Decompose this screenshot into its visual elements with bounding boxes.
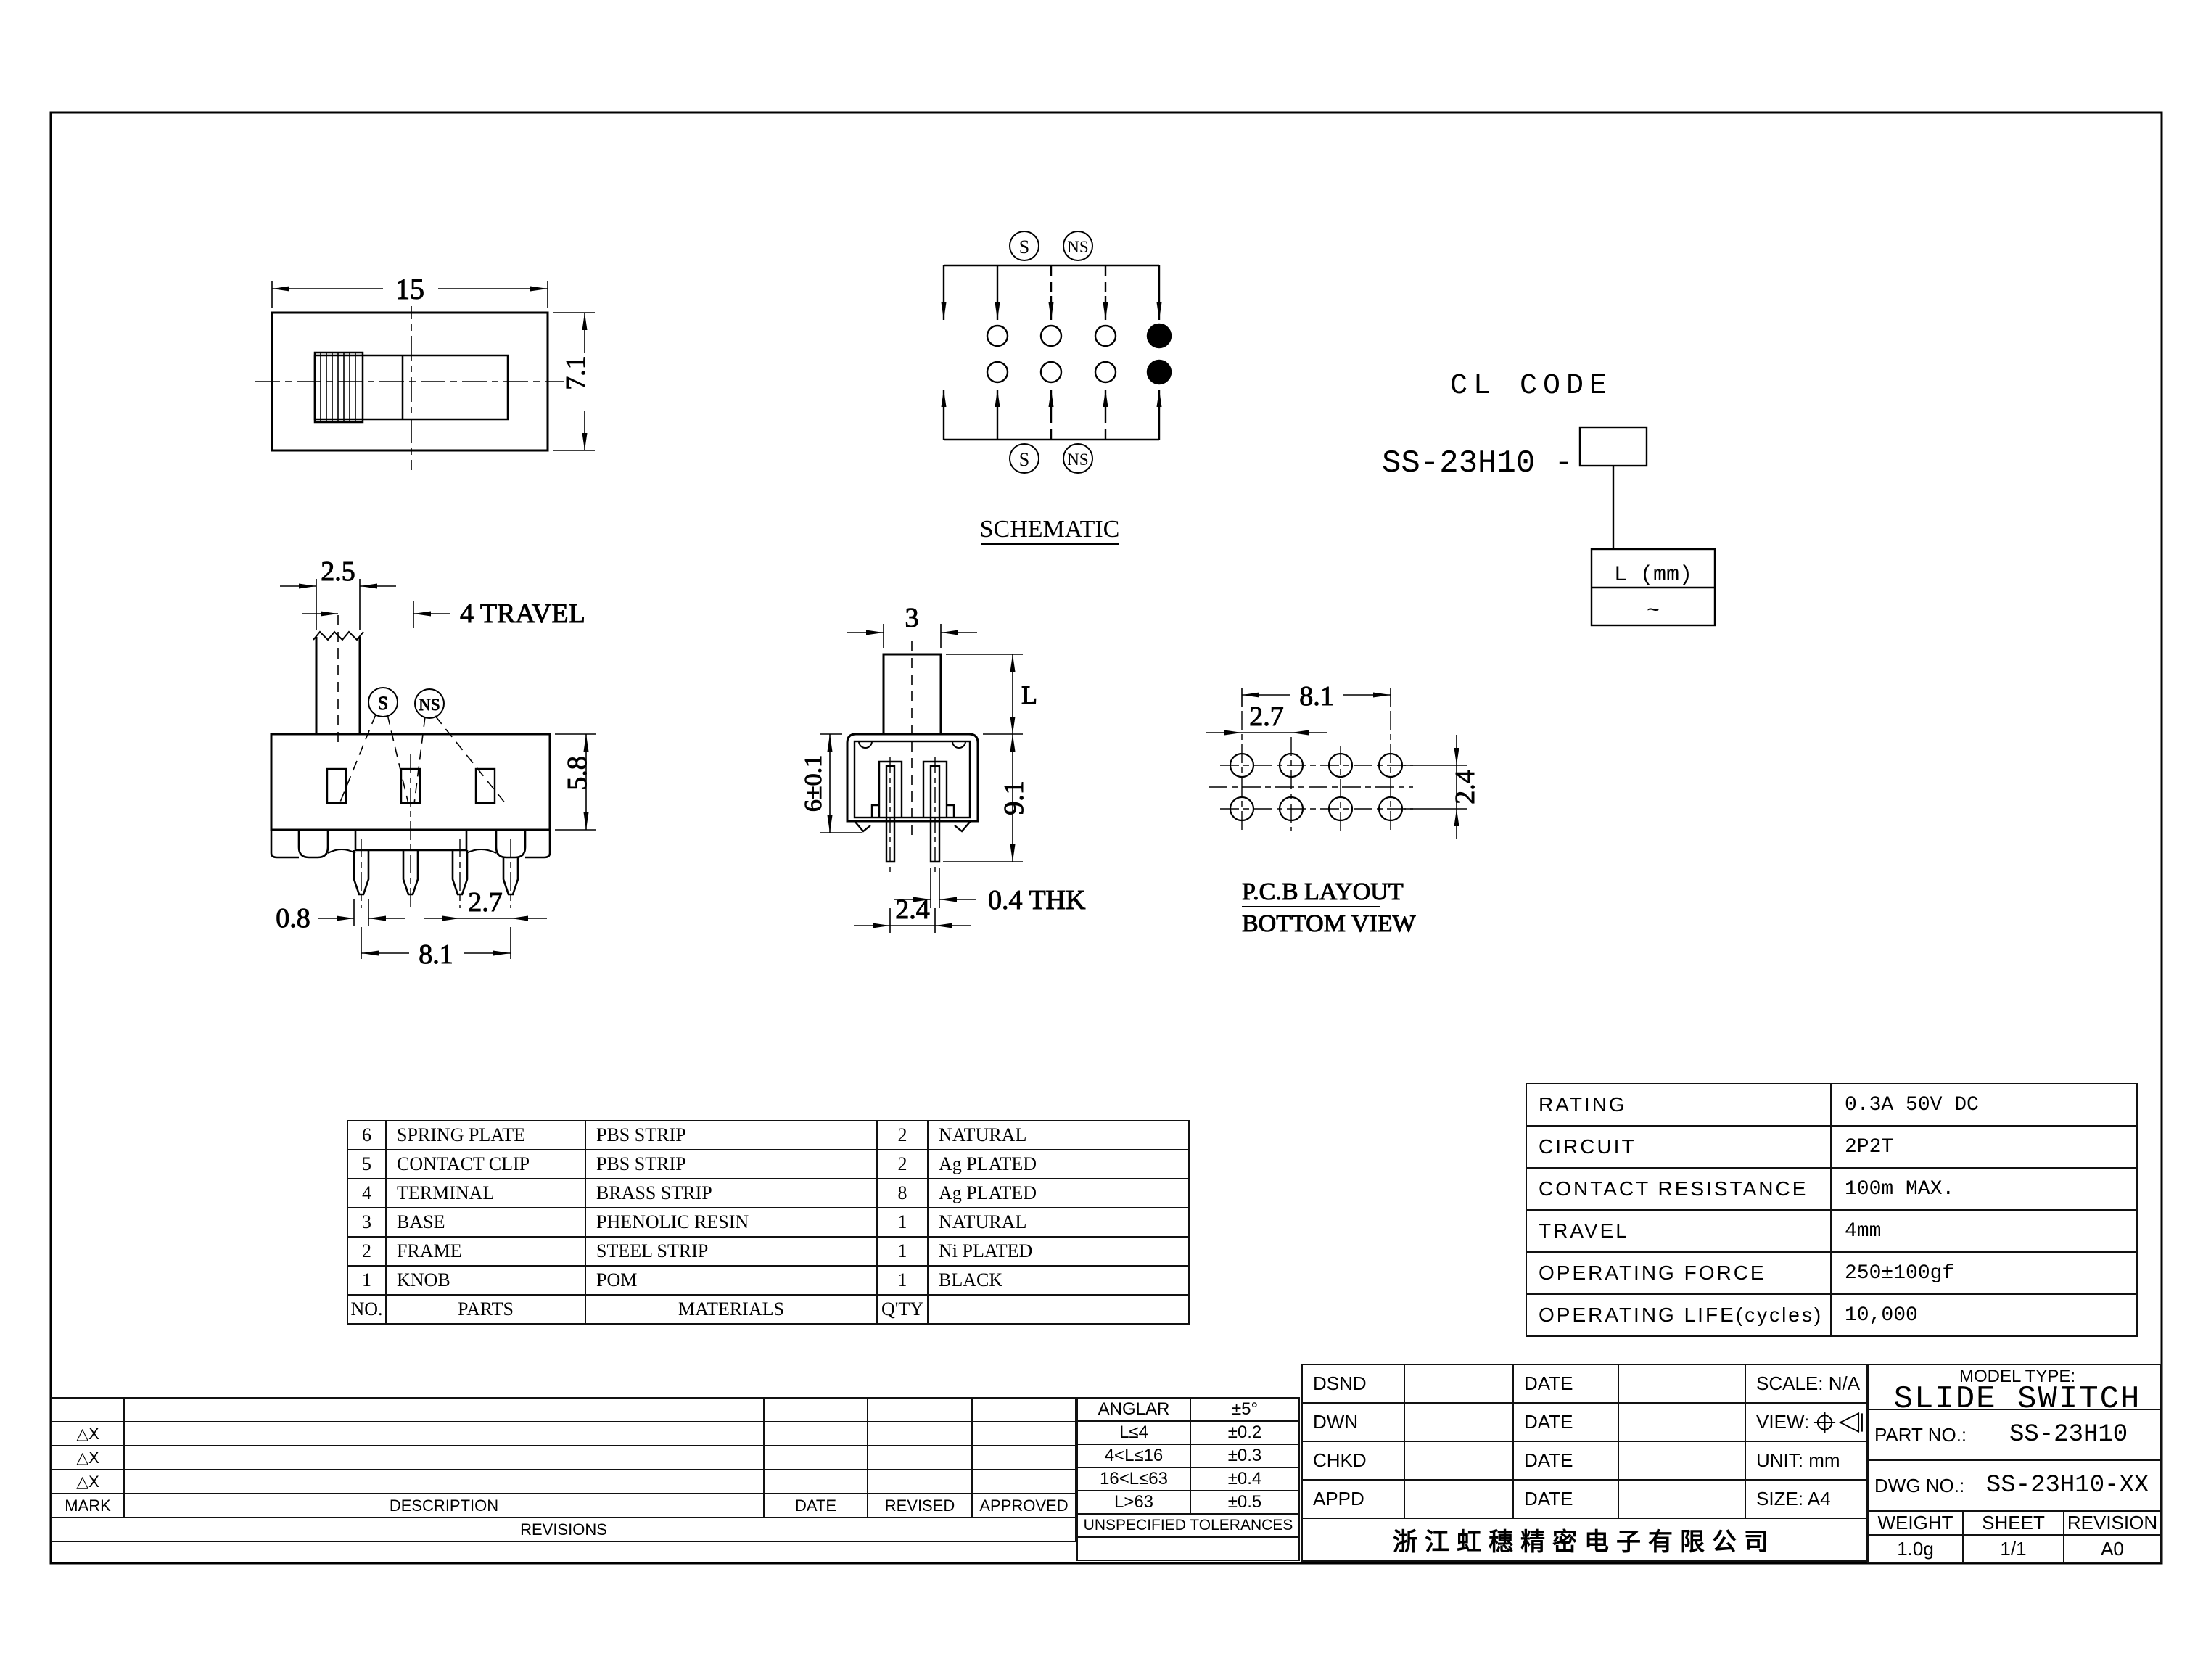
approval-label: DWN	[1303, 1404, 1404, 1441]
top-view: 15 7.1	[255, 270, 601, 470]
cl-code-part-number: SS-23H10 -	[1382, 445, 1573, 482]
revisions-table: △X △X △X MARK DESCRIPTION DATE REVISED A…	[51, 1397, 1076, 1542]
header-parts: PARTS	[387, 1296, 585, 1323]
approval-sign	[1405, 1404, 1512, 1441]
front-ns-label: NS	[419, 696, 440, 714]
dim-front-span: 8.1	[419, 939, 453, 970]
side-pin-centerlines	[890, 757, 935, 874]
pcb-centerlines	[1209, 711, 1413, 831]
dim-front-pitch: 2.7	[468, 887, 503, 918]
cell-qty: 1	[878, 1238, 927, 1265]
cell-finish: Ag PLATED	[929, 1179, 1188, 1207]
schematic-s-top: S	[1019, 236, 1029, 258]
common-contact-bottom	[1148, 361, 1171, 384]
view-label-text: VIEW:	[1756, 1411, 1809, 1433]
model-type-cell: MODEL TYPE: SLIDE SWITCH	[1869, 1365, 2160, 1409]
tolerances-title: UNSPECIFIED TOLERANCES	[1078, 1515, 1298, 1536]
schematic-ns-top: NS	[1067, 238, 1088, 256]
dwg-no-label: DWG NO.:	[1874, 1475, 1964, 1497]
tol-range: 4<L≤16	[1078, 1445, 1190, 1467]
tol-range: L>63	[1078, 1491, 1190, 1513]
sheet-header: SHEET	[1964, 1512, 2063, 1534]
rev-empty	[868, 1399, 971, 1421]
rev-empty	[125, 1422, 763, 1445]
cell-finish: Ni PLATED	[929, 1238, 1188, 1265]
spec-value: 2P2T	[1832, 1127, 2136, 1167]
dim-pcb-rows: 2.4	[1450, 770, 1481, 804]
cell-part: BASE	[387, 1208, 585, 1236]
pin-centerlines	[361, 754, 511, 908]
cell-part: FRAME	[387, 1238, 585, 1265]
spec-label: CIRCUIT	[1527, 1127, 1830, 1167]
cl-code-title: CL CODE	[1450, 370, 1613, 403]
spec-label: RATING	[1527, 1084, 1830, 1125]
sheet-value: 1/1	[1964, 1536, 2063, 1562]
cell-finish: NATURAL	[929, 1121, 1188, 1149]
front-s-label: S	[378, 693, 388, 714]
third-angle-projection-icon	[1813, 1408, 1866, 1437]
cell-finish: Ag PLATED	[929, 1150, 1188, 1178]
header-no: NO.	[348, 1296, 385, 1323]
cell-part: SPRING PLATE	[387, 1121, 585, 1149]
spec-label: TRAVEL	[1527, 1211, 1830, 1251]
rev-empty	[973, 1399, 1075, 1421]
rev-empty	[973, 1422, 1075, 1445]
part-no-value: SS-23H10	[1977, 1421, 2160, 1449]
approval-label: CHKD	[1303, 1442, 1404, 1479]
part-no-cell: PART NO.: SS-23H10	[1869, 1410, 2160, 1459]
company-name: 浙江虹穗精密电子有限公司	[1303, 1519, 1866, 1560]
cell-finish: NATURAL	[929, 1208, 1188, 1236]
schematic-s-bottom: S	[1019, 449, 1029, 470]
cell-finish: BLACK	[929, 1267, 1188, 1294]
dim-top-height: 7.1	[561, 355, 591, 390]
tolerances-table: ANGLAR ±5° L≤4 ±0.2 4<L≤16 ±0.3 16<L≤63 …	[1076, 1397, 1300, 1561]
dim-pcb-span: 8.1	[1299, 681, 1334, 712]
dim-front-height: 5.8	[562, 756, 593, 791]
cell-no: 1	[348, 1267, 385, 1294]
dim-front-pin-width: 0.8	[276, 903, 310, 934]
pcb-subtitle: BOTTOM VIEW	[1242, 910, 1416, 937]
unit-label: UNIT: mm	[1746, 1442, 1866, 1479]
front-view: 2.5 4 TRAVEL S NS	[271, 556, 596, 970]
cell-qty: 1	[878, 1267, 927, 1294]
cell-no: 4	[348, 1179, 385, 1207]
scale-label: SCALE: N/A	[1746, 1365, 1866, 1402]
spec-label: OPERATING FORCE	[1527, 1253, 1830, 1293]
rev-empty	[868, 1446, 971, 1469]
tol-empty	[1078, 1538, 1298, 1560]
tol-value: ±5°	[1191, 1399, 1298, 1420]
cl-code-l-mm: L (mm)	[1614, 563, 1692, 588]
contact-leader-lines	[339, 715, 506, 804]
dwg-no-cell: DWG NO.: SS-23H10-XX	[1869, 1461, 2160, 1510]
approval-date-value	[1619, 1404, 1745, 1441]
rev-empty	[868, 1470, 971, 1493]
rev-header-description: DESCRIPTION	[125, 1494, 763, 1517]
dim-front-travel: 4 TRAVEL	[460, 598, 585, 629]
rev-empty	[125, 1446, 763, 1469]
cell-material: POM	[586, 1267, 876, 1294]
approval-date-label: DATE	[1514, 1442, 1618, 1479]
dim-side-knob: 3	[905, 603, 919, 633]
schematic-ns-bottom: NS	[1067, 450, 1088, 469]
spec-value: 10,000	[1832, 1295, 2136, 1335]
approval-label: APPD	[1303, 1481, 1404, 1518]
size-label: SIZE: A4	[1746, 1481, 1866, 1518]
dim-side-body: 6±0.1	[800, 755, 827, 812]
view-label: VIEW:	[1746, 1404, 1866, 1441]
model-type-value: SLIDE SWITCH	[1874, 1387, 2160, 1409]
approval-date-value	[1619, 1481, 1745, 1518]
cell-qty: 2	[878, 1121, 927, 1149]
cell-part: CONTACT CLIP	[387, 1150, 585, 1178]
cl-code-diagram: CL CODE SS-23H10 - L (mm) ~	[1382, 370, 1715, 625]
tol-value: ±0.3	[1191, 1445, 1298, 1467]
dwg-no-value: SS-23H10-XX	[1975, 1472, 2160, 1499]
title-block-info: MODEL TYPE: SLIDE SWITCH PART NO.: SS-23…	[1867, 1364, 2162, 1563]
rev-empty	[52, 1399, 123, 1421]
cell-no: 2	[348, 1238, 385, 1265]
cell-material: PBS STRIP	[586, 1121, 876, 1149]
dim-side-thk: 0.4 THK	[988, 885, 1086, 915]
rev-mark: △X	[52, 1422, 123, 1445]
tol-range: ANGLAR	[1078, 1399, 1190, 1420]
approval-sign	[1405, 1365, 1512, 1402]
engineering-drawing-page: 15 7.1 S NS S NS SCHEMATIC	[0, 0, 2211, 1680]
approval-date-value	[1619, 1365, 1745, 1402]
side-view: 3 L 6±0.1 9.1	[800, 603, 1086, 933]
approval-date-label: DATE	[1514, 1481, 1618, 1518]
cell-part: KNOB	[387, 1267, 585, 1294]
spec-value: 250±100gf	[1832, 1253, 2136, 1293]
cell-material: BRASS STRIP	[586, 1179, 876, 1207]
approval-label: DSND	[1303, 1365, 1404, 1402]
title-block-approvals: DSND DATE SCALE: N/A DWN DATE VIEW: CHKD…	[1301, 1364, 1867, 1562]
rev-mark: △X	[52, 1446, 123, 1469]
rev-empty	[125, 1399, 763, 1421]
rev-header-mark: MARK	[52, 1494, 123, 1517]
schematic-view: S NS S NS SCHEMATIC	[944, 231, 1171, 544]
common-contact-top	[1148, 324, 1171, 347]
revisions-title: REVISIONS	[52, 1518, 1075, 1541]
spec-label: OPERATING LIFE(cycles)	[1527, 1295, 1830, 1335]
dim-side-total: 9.1	[999, 781, 1029, 815]
pcb-title: P.C.B LAYOUT	[1242, 878, 1404, 905]
spec-value: 0.3A 50V DC	[1832, 1084, 2136, 1125]
tol-value: ±0.4	[1191, 1468, 1298, 1490]
rev-empty	[765, 1399, 867, 1421]
revision-header: REVISION	[2064, 1512, 2160, 1534]
cl-code-range: ~	[1647, 599, 1660, 624]
approval-sign	[1405, 1481, 1512, 1518]
dim-pcb-pitch: 2.7	[1249, 701, 1284, 732]
approval-date-label: DATE	[1514, 1365, 1618, 1402]
cell-part: TERMINAL	[387, 1179, 585, 1207]
parts-table: 6 SPRING PLATE PBS STRIP 2 NATURAL 5 CON…	[347, 1120, 1190, 1325]
part-no-label: PART NO.:	[1874, 1424, 1967, 1446]
rev-empty	[765, 1446, 867, 1469]
approval-date-value	[1619, 1442, 1745, 1479]
approval-date-label: DATE	[1514, 1404, 1618, 1441]
cell-no: 5	[348, 1150, 385, 1178]
tol-value: ±0.2	[1191, 1422, 1298, 1444]
spec-value: 100m MAX.	[1832, 1169, 2136, 1209]
cell-no: 3	[348, 1208, 385, 1236]
cell-qty: 8	[878, 1179, 927, 1207]
tol-range: 16<L≤63	[1078, 1468, 1190, 1490]
rev-header-date: DATE	[765, 1494, 867, 1517]
cell-qty: 1	[878, 1208, 927, 1236]
spec-table: RATING 0.3A 50V DC CIRCUIT 2P2T CONTACT …	[1526, 1083, 2138, 1337]
pcb-layout-view: 8.1 2.7 2.4 P.C.B LAYOUT BOTTOM VIEW	[1206, 678, 1481, 937]
rev-header-revised: REVISED	[868, 1494, 971, 1517]
rev-empty	[973, 1446, 1075, 1469]
rev-header-approved: APPROVED	[973, 1494, 1075, 1517]
sheet-border	[51, 112, 2162, 1563]
cell-qty: 2	[878, 1150, 927, 1178]
dim-top-width: 15	[395, 273, 424, 305]
rev-empty	[868, 1422, 971, 1445]
approval-sign	[1405, 1442, 1512, 1479]
weight-header: WEIGHT	[1869, 1512, 1962, 1534]
dim-side-l: L	[1021, 680, 1037, 709]
cell-material: STEEL STRIP	[586, 1238, 876, 1265]
dim-side-pitch: 2.4	[895, 894, 930, 925]
header-qty: Q'TY	[878, 1296, 927, 1323]
cell-material: PBS STRIP	[586, 1150, 876, 1178]
tol-range: L≤4	[1078, 1422, 1190, 1444]
spec-label: CONTACT RESISTANCE	[1527, 1169, 1830, 1209]
rev-mark: △X	[52, 1470, 123, 1493]
weight-value: 1.0g	[1869, 1536, 1962, 1562]
rev-empty	[973, 1470, 1075, 1493]
rev-empty	[125, 1470, 763, 1493]
header-materials: MATERIALS	[586, 1296, 876, 1323]
dim-front-knob: 2.5	[321, 556, 355, 587]
header-finish	[929, 1296, 1188, 1323]
cell-no: 6	[348, 1121, 385, 1149]
tol-value: ±0.5	[1191, 1491, 1298, 1513]
spec-value: 4mm	[1832, 1211, 2136, 1251]
rev-empty	[765, 1422, 867, 1445]
revision-value: A0	[2064, 1536, 2160, 1562]
knurl-hatch	[321, 353, 355, 422]
cl-code-suffix-box	[1580, 427, 1647, 466]
rev-empty	[765, 1470, 867, 1493]
cell-material: PHENOLIC RESIN	[586, 1208, 876, 1236]
schematic-title: SCHEMATIC	[980, 516, 1120, 543]
